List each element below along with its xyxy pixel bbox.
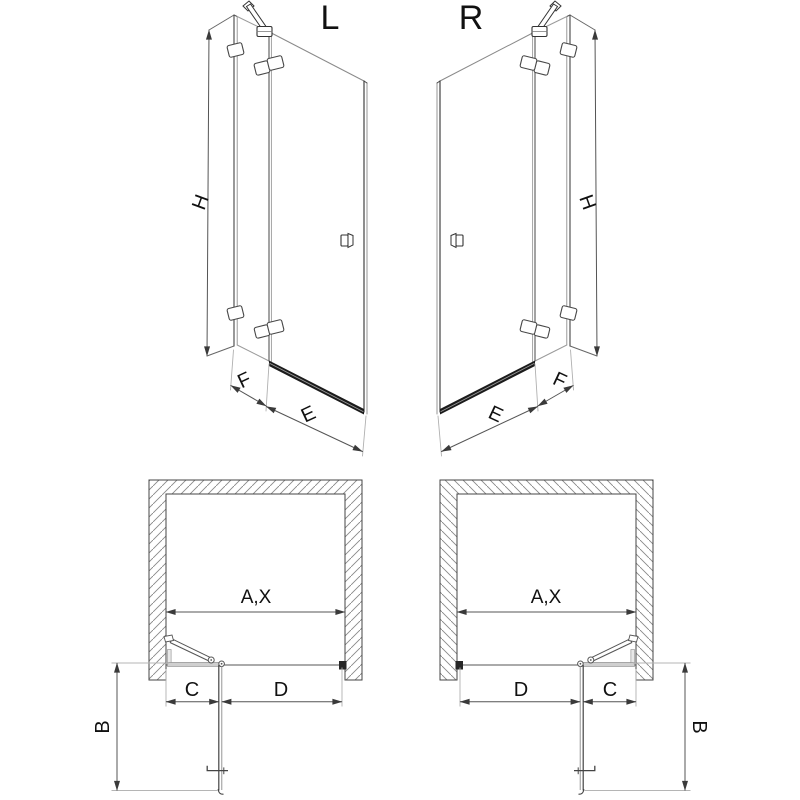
left-elevation-drawing: [207, 1, 367, 456]
right-plan-drawing: [440, 480, 691, 794]
technical-diagram: L R H H F E E F A,X A,X C D D C B B: [0, 0, 800, 800]
label-d-left: D: [274, 679, 288, 701]
label-ax-right: A,X: [531, 587, 562, 608]
label-d-right: D: [514, 679, 528, 701]
label-e-right: E: [485, 402, 506, 428]
label-b-left: B: [92, 720, 114, 733]
label-variant-left: L: [321, 0, 340, 37]
shower-door-diagram: L R H H F E E F A,X A,X C D D C B B: [0, 0, 800, 800]
label-height-left: H: [188, 192, 214, 213]
label-c-right: C: [603, 679, 617, 701]
label-b-right: B: [688, 720, 710, 733]
label-c-left: C: [185, 679, 199, 701]
right-elevation-drawing: [437, 1, 597, 456]
label-e-left: E: [298, 402, 319, 428]
label-variant-right: R: [459, 0, 484, 37]
label-ax-left: A,X: [241, 587, 272, 608]
left-plan-drawing: [112, 480, 363, 794]
